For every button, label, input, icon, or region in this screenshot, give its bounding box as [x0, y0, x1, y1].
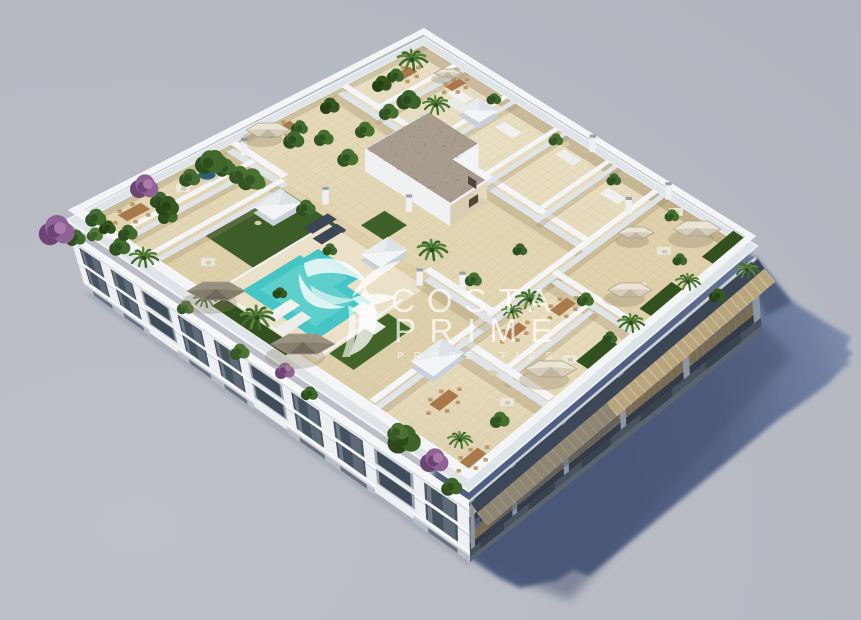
- svg-text:PRIME: PRIME: [394, 312, 566, 349]
- svg-text:PROPERTIES: PROPERTIES: [397, 351, 562, 362]
